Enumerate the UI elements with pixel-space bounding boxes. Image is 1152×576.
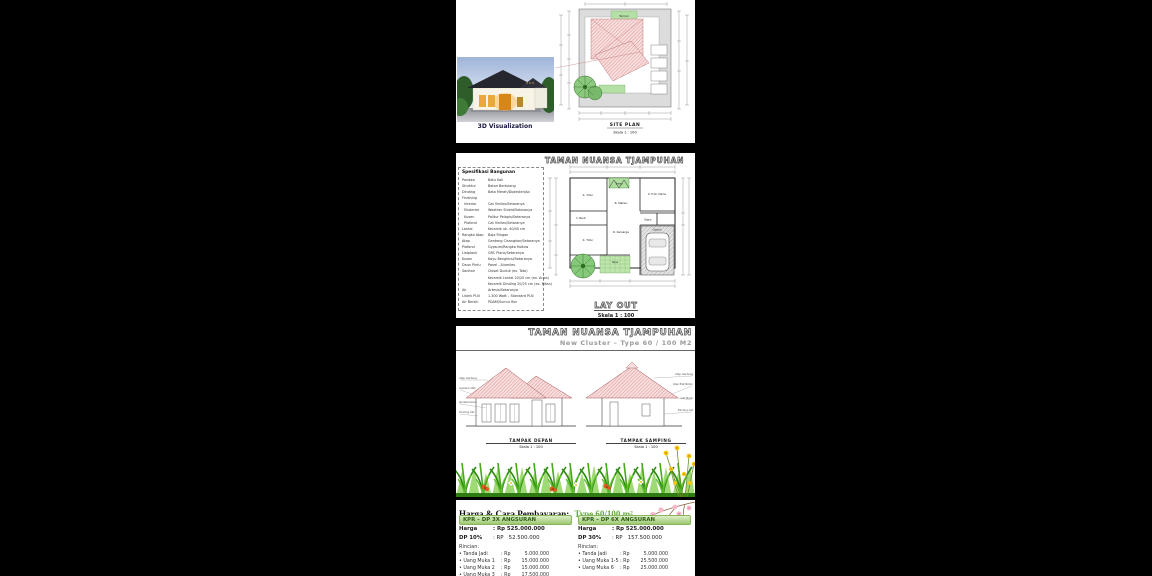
rincian-item: • Tanda Jadi : Rp 5.000.000	[578, 551, 691, 558]
project-title: TAMAN NUANSA TJAMPUHAN	[528, 328, 692, 338]
window-lit	[479, 95, 486, 107]
flyer-canvas: 3D Visualization	[0, 0, 1152, 576]
item-currency: : Rp	[501, 558, 515, 565]
car-icon	[646, 233, 669, 271]
room-taman: Taman	[615, 183, 623, 186]
harga-value: : Rp 525.000.000	[493, 525, 545, 534]
front-door	[499, 94, 511, 110]
harga-label: Harga	[578, 525, 612, 534]
item-label: • Uang Muka 3	[459, 572, 501, 576]
pricing-section: Harga & Cara Pembayaran: Type 60/100 m² …	[456, 500, 695, 576]
item-value: 5.000.000	[515, 551, 549, 558]
dp-label: DP 30%	[578, 534, 612, 543]
rincian-label: Rincian:	[459, 543, 572, 551]
item-value: 17.500.000	[515, 572, 549, 576]
section-overview: 3D Visualization	[456, 0, 695, 143]
garden-label: Taman	[618, 14, 629, 18]
layout-scale: Skala 1 : 100	[566, 313, 666, 318]
section-layout: TAMAN NUANSA TJAMPUHAN Spesifikasi Bangu…	[456, 153, 695, 318]
spec-value: Bata Merah/Diplester/Aci	[488, 189, 530, 195]
price-column-header: KPR – DP 6X ANGSURAN	[578, 515, 691, 525]
callout-side-2: Atap Plat Beton	[673, 382, 694, 386]
room-carport: Carport	[652, 229, 661, 232]
rincian-label: Rincian:	[578, 543, 691, 551]
siteplan-drawing: Taman	[555, 1, 693, 141]
side-opening	[610, 402, 618, 426]
item-value: 15.000.000	[515, 565, 549, 572]
item-value: 5.000.000	[634, 551, 668, 558]
room-bed1: K. Tidur	[583, 193, 595, 197]
rincian-item: • Uang Muka 6 : Rp 25.000.000	[578, 565, 691, 572]
item-label: • Tanda Jadi	[459, 551, 501, 558]
item-label: • Uang Muka 2	[459, 565, 501, 572]
rincian-item: • Uang Muka 2 : Rp 15.000.000	[459, 565, 572, 572]
price-column-kpr-6x: KPR – DP 6X ANGSURAN Harga : Rp 525.000.…	[578, 515, 691, 576]
callout-labels: Atap Genteng Atap Plat Beton List Plank …	[673, 372, 694, 412]
layout-title: LAY OUT	[594, 301, 637, 311]
photo-3d-visualization	[457, 57, 554, 122]
price-column-kpr-3x: KPR – DP 3X ANGSURAN Harga : Rp 525.000.…	[459, 515, 572, 576]
callout-side-4: Dinding Cat	[678, 408, 693, 412]
spec-value: PDAM/Sumur Bor	[488, 299, 517, 305]
item-currency: : Rp	[501, 551, 515, 558]
rincian-items: • Tanda Jadi : Rp 5.000.000 • Uang Muka …	[578, 551, 691, 572]
callout-front-1: Atap Genteng	[459, 376, 477, 380]
spec-row: Air Bersih PDAM/Sumur Bor	[462, 299, 540, 305]
section3-header: TAMAN NUANSA TJAMPUHAN New Cluster – Typ…	[528, 328, 692, 347]
dp-value: : RP 52.500.000	[493, 534, 540, 543]
dp-row: DP 30% : RP 157.500.000	[578, 534, 691, 543]
room-teras: Teras	[612, 261, 619, 264]
floorplan-drawing: K. Tidur Taman K. Tidur Utama R. Makan K…	[545, 163, 694, 291]
rincian-item: • Uang Muka 1 : Rp 15.000.000	[459, 558, 572, 565]
house-3d-render	[457, 57, 554, 122]
item-currency: : Rp	[620, 551, 634, 558]
rincian-item: • Uang Muka 1-5 : Rp 25.500.000	[578, 558, 691, 565]
item-label: • Tanda Jadi	[578, 551, 620, 558]
spec-title: Spesifikasi Bangunan	[462, 170, 540, 175]
elevation-front-drawing: Atap Genteng Lisplank GRC Jendela Kaca D…	[458, 356, 580, 440]
side-roof	[586, 366, 678, 398]
elevation-side-drawing: Atap Genteng Atap Plat Beton List Plank …	[582, 356, 694, 440]
section-elevations: TAMAN NUANSA TJAMPUHAN New Cluster – Typ…	[456, 326, 695, 497]
harga-value: : Rp 525.000.000	[612, 525, 664, 534]
room-rkeluarga: R. Keluarga	[613, 230, 629, 234]
item-currency: : Rp	[501, 565, 515, 572]
header-rule	[456, 350, 695, 351]
grass-decoration	[456, 439, 695, 497]
harga-row: Harga : Rp 525.000.000	[459, 525, 572, 534]
rincian-item: • Uang Muka 3 : Rp 17.500.000	[459, 572, 572, 576]
item-value: 25.500.000	[634, 558, 668, 565]
callout-front-3: Jendela Kaca	[458, 400, 476, 404]
dp-label: DP 10%	[459, 534, 493, 543]
tree-symbol	[571, 254, 595, 278]
room-rmakan: R. Makan	[615, 201, 628, 205]
room-dapur: Dapur	[644, 219, 651, 222]
content-strip: 3D Visualization	[456, 0, 695, 576]
room-master: K. Tidur Utama	[648, 193, 666, 196]
item-value: 25.000.000	[634, 565, 668, 572]
callout-front-2: Lisplank GRC	[459, 386, 476, 390]
siteplan-title: SITE PLAN	[610, 122, 641, 128]
price-columns: KPR – DP 3X ANGSURAN Harga : Rp 525.000.…	[459, 515, 692, 576]
item-label: • Uang Muka 1-5	[578, 558, 620, 565]
spec-sheet: Spesifikasi Bangunan Pondasi Batu Kali S…	[458, 167, 544, 311]
callout-side-1: Atap Genteng	[675, 372, 693, 376]
spec-label: Air Bersih	[462, 299, 488, 305]
siteplan-scale: Skala 1 : 100	[613, 131, 637, 135]
dp-value: : RP 157.500.000	[612, 534, 662, 543]
item-label: • Uang Muka 6	[578, 565, 620, 572]
room-kmandi: K. Mandi	[576, 217, 586, 220]
callout-front-4: Dinding Cat	[459, 410, 474, 414]
price-column-header: KPR – DP 3X ANGSURAN	[459, 515, 572, 525]
layout-label: LAY OUT Skala 1 : 100	[566, 293, 666, 318]
dp-row: DP 10% : RP 52.500.000	[459, 534, 572, 543]
rincian-item: • Tanda Jadi : Rp 5.000.000	[459, 551, 572, 558]
harga-row: Harga : Rp 525.000.000	[578, 525, 691, 534]
item-label: • Uang Muka 1	[459, 558, 501, 565]
item-value: 15.000.000	[515, 558, 549, 565]
harga-label: Harga	[459, 525, 493, 534]
callout-side-3: List Plank	[681, 396, 694, 400]
item-currency: : Rp	[620, 558, 634, 565]
rincian-items: • Tanda Jadi : Rp 5.000.000 • Uang Muka …	[459, 551, 572, 576]
item-currency: : Rp	[501, 572, 515, 576]
room-bed2: K. Tidur	[583, 238, 595, 242]
cluster-subtitle: New Cluster – Type 60 / 100 M2	[528, 339, 692, 347]
photo-caption: 3D Visualization	[456, 123, 554, 130]
spec-rows: Pondasi Batu Kali Struktur Beton Bertula…	[462, 177, 540, 305]
item-currency: : Rp	[620, 565, 634, 572]
